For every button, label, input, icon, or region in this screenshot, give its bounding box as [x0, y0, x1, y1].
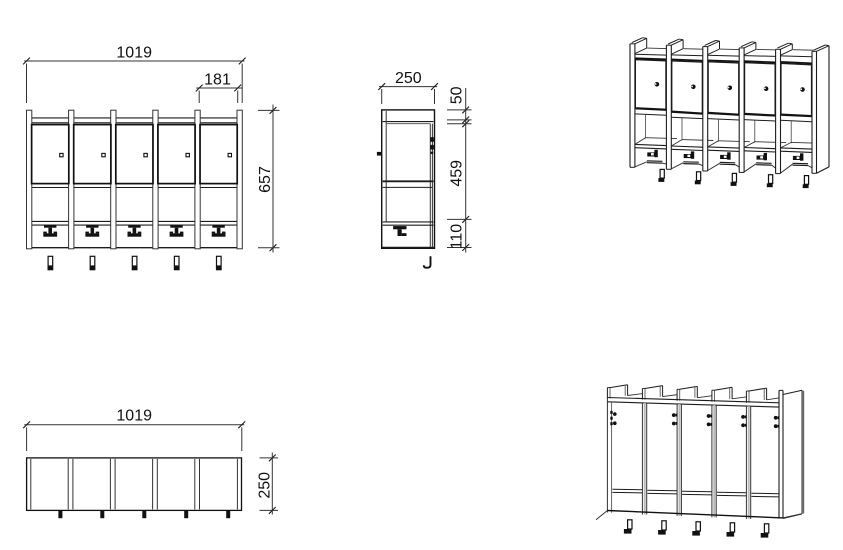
svg-text:250: 250	[395, 70, 422, 87]
svg-text:459: 459	[449, 160, 466, 187]
svg-text:657: 657	[257, 166, 274, 193]
svg-text:181: 181	[204, 71, 231, 88]
svg-text:50: 50	[449, 86, 466, 104]
svg-text:1019: 1019	[116, 408, 152, 425]
svg-text:250: 250	[257, 472, 274, 499]
svg-text:1019: 1019	[116, 45, 152, 62]
svg-text:110: 110	[449, 224, 466, 250]
